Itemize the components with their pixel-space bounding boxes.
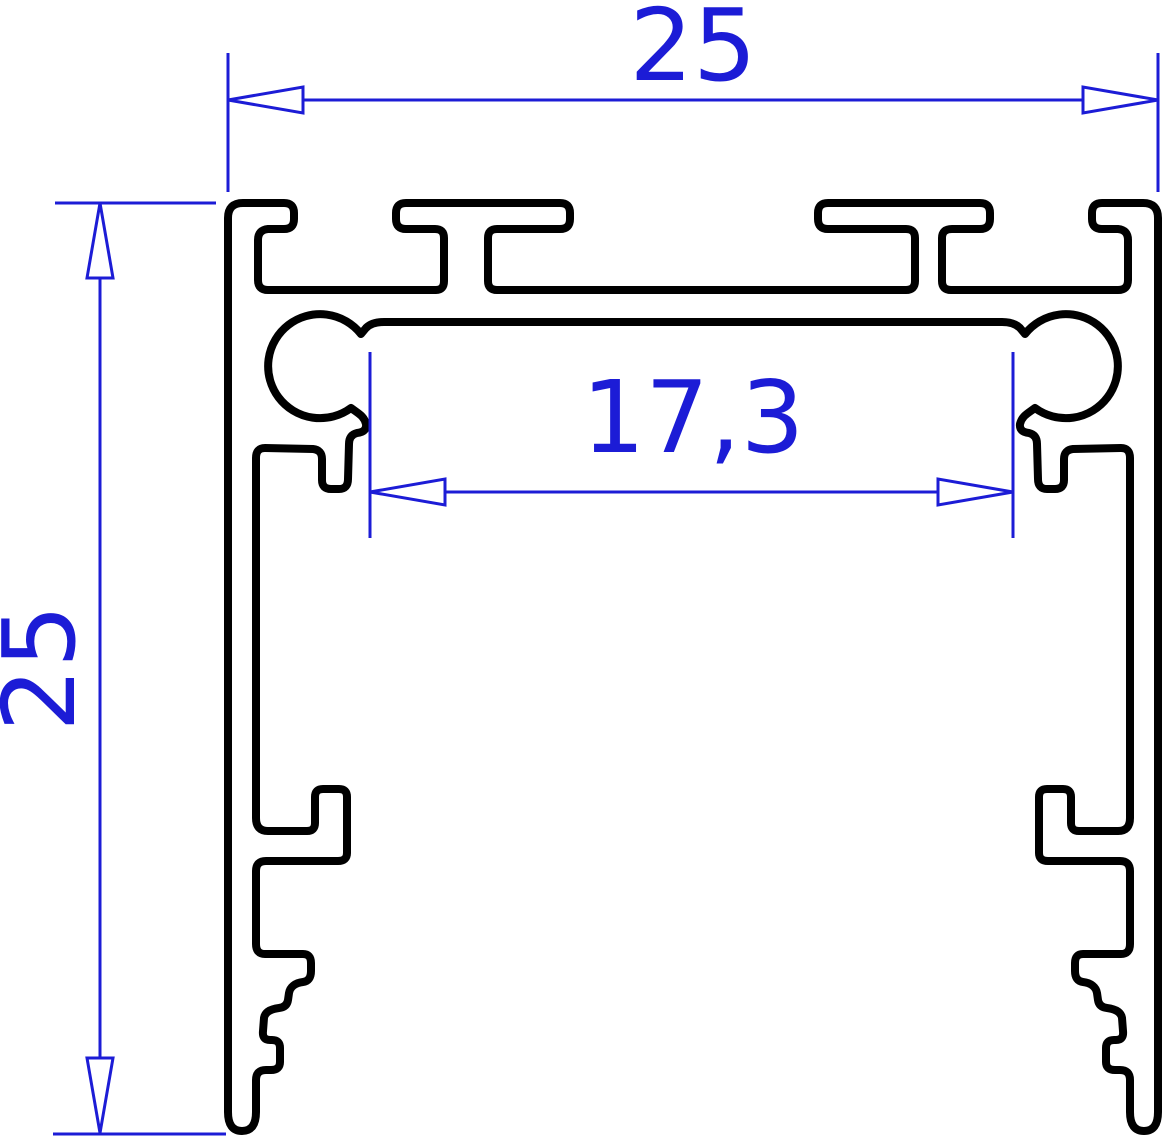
profile-outline [228,203,1158,1131]
dimension-value-height: 25 [0,604,98,731]
profile-drawing: 25 25 17,3 [0,0,1162,1139]
arrowhead-right-icon [1083,87,1158,113]
profile-cross-section [228,203,1158,1131]
arrowhead-up-icon [87,203,113,278]
drawing-canvas: 25 25 17,3 [0,0,1162,1139]
arrowhead-left-icon [370,479,445,505]
dimension-value-inner-width: 17,3 [582,359,805,476]
dimension-value-width: 25 [629,0,756,104]
arrowhead-down-icon [87,1058,113,1133]
arrowhead-left-icon [228,87,303,113]
arrowhead-right-icon [938,479,1013,505]
